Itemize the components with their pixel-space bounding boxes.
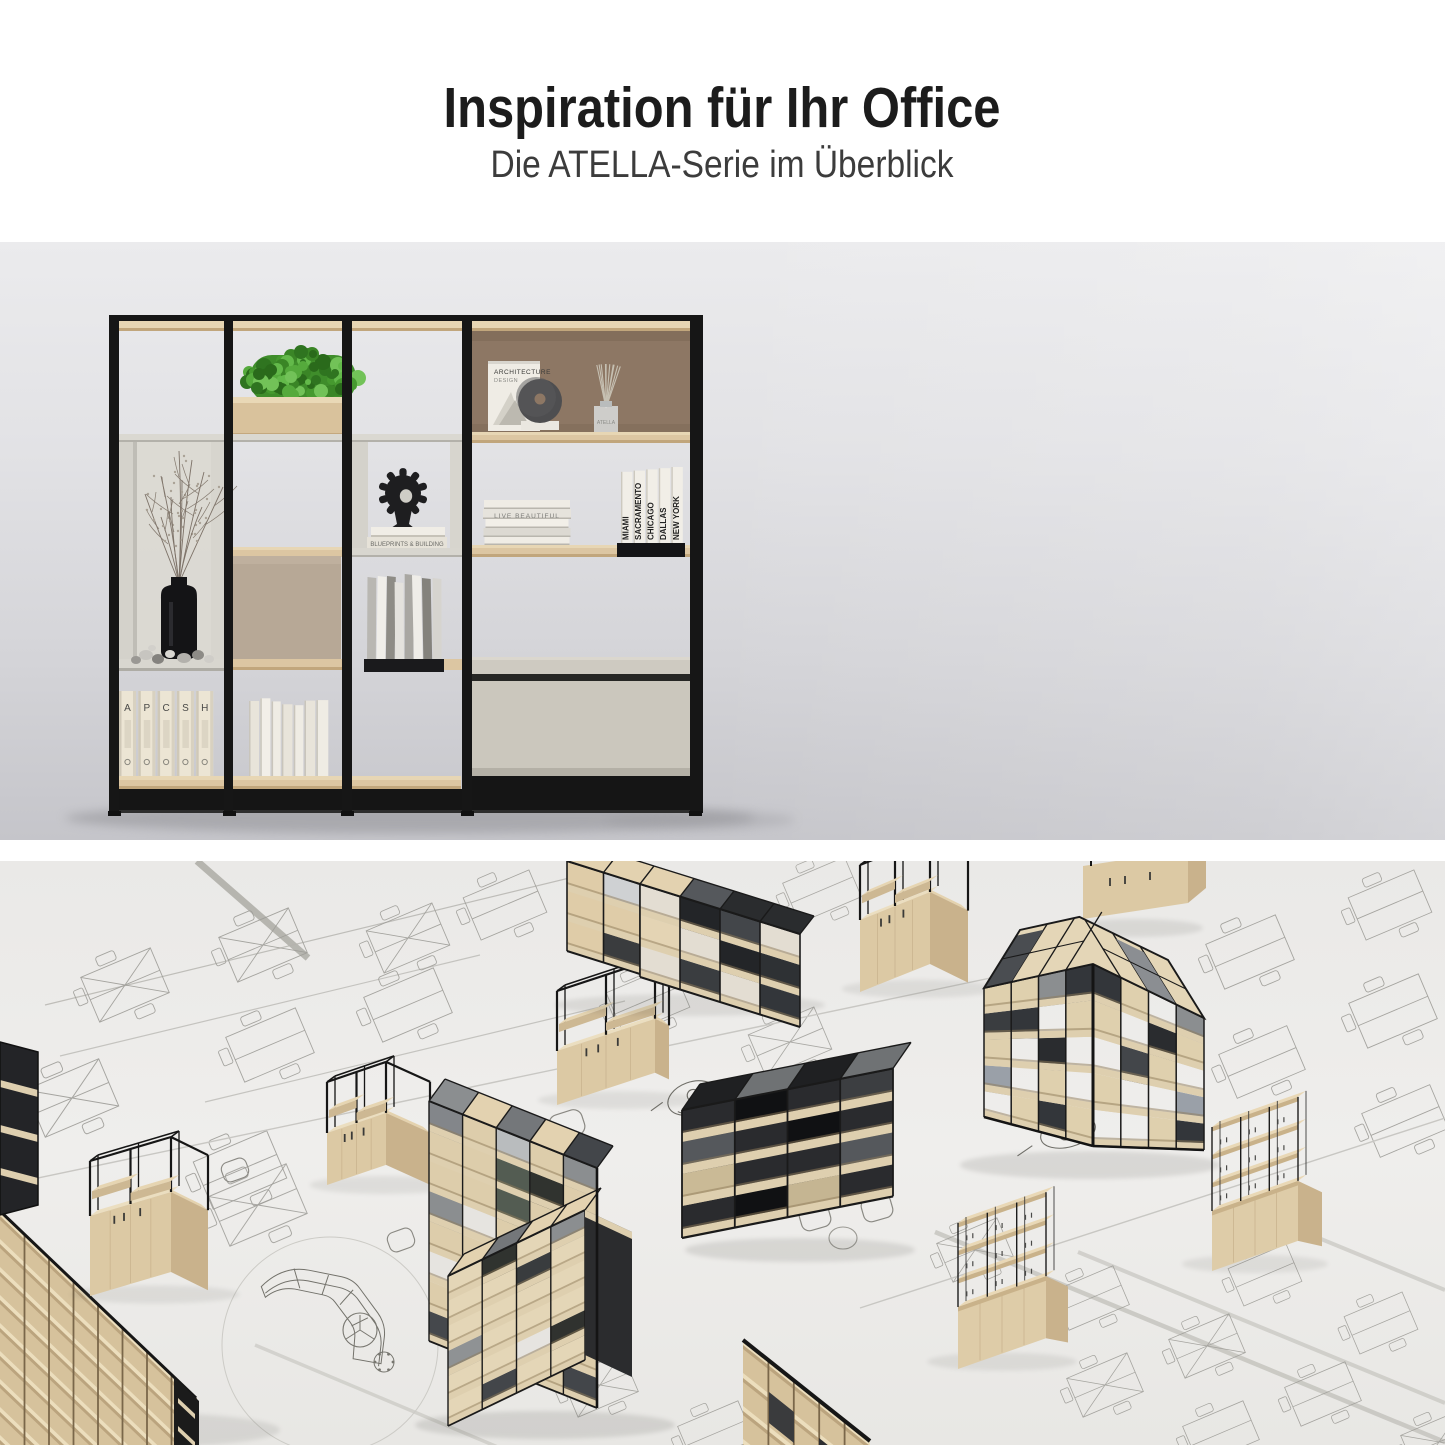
svg-text:MIAMI: MIAMI xyxy=(621,516,630,540)
svg-text:C: C xyxy=(162,703,169,714)
svg-text:BLUEPRINTS & BUILDING: BLUEPRINTS & BUILDING xyxy=(370,542,444,548)
svg-text:LIVE BEAUTIFUL: LIVE BEAUTIFUL xyxy=(494,513,560,520)
svg-text:H: H xyxy=(201,703,208,714)
svg-text:ARCHITECTURE: ARCHITECTURE xyxy=(494,369,551,376)
svg-text:SACRAMENTO: SACRAMENTO xyxy=(634,483,643,540)
svg-text:NEW YORK: NEW YORK xyxy=(672,496,681,540)
svg-text:DALLAS: DALLAS xyxy=(659,507,668,540)
svg-text:P: P xyxy=(143,703,150,714)
svg-text:Die ATELLA-Serie im Überblick: Die ATELLA-Serie im Überblick xyxy=(491,144,955,186)
svg-text:ATELLA: ATELLA xyxy=(597,420,616,426)
svg-text:A: A xyxy=(124,703,131,714)
svg-text:DESIGN: DESIGN xyxy=(494,378,518,384)
svg-text:Inspiration für Ihr Office: Inspiration für Ihr Office xyxy=(444,76,1001,139)
svg-text:S: S xyxy=(182,703,189,714)
svg-text:CHICAGO: CHICAGO xyxy=(647,502,656,540)
